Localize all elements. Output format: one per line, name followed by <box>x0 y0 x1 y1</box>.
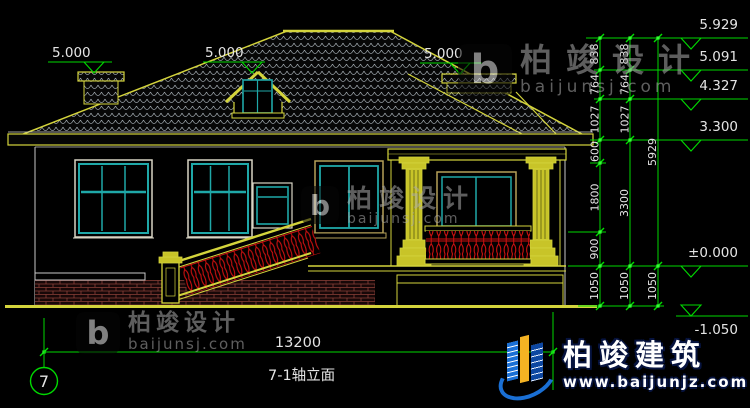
company-brand: 柏竣建筑 www.baijunjz.com <box>497 334 748 396</box>
dim-inner-2: 764 <box>589 74 602 95</box>
overall-width-dimension: 13200 <box>275 335 321 351</box>
window-sliding <box>312 161 386 238</box>
dim-mid-2: 764 <box>619 74 632 95</box>
dim-mid-3: 1027 <box>619 106 632 134</box>
plinth-cap-band <box>35 273 145 280</box>
axis-number: 7 <box>39 372 49 391</box>
level-eave: 4.327 <box>699 78 738 94</box>
level-dormer: 5.000 <box>205 45 244 61</box>
dim-outer-1: 5929 <box>646 138 659 166</box>
dim-inner-7: 1050 <box>588 272 601 300</box>
level-left-chimney: 5.000 <box>52 45 91 61</box>
window-mid-large <box>186 160 254 238</box>
company-name: 柏竣建筑 <box>563 339 748 372</box>
window-left-large <box>73 160 154 238</box>
dim-inner-4: 600 <box>589 141 602 162</box>
view-title: 7-1轴立面 <box>268 367 335 384</box>
porch-column-left <box>397 157 431 266</box>
window-small <box>253 183 292 228</box>
level-wall-top: 3.300 <box>699 119 738 135</box>
dormer-sill <box>232 113 284 118</box>
level-right-chimney: 5.000 <box>424 46 463 62</box>
porch-railing <box>425 226 531 264</box>
dim-mid-5: 1050 <box>618 272 631 300</box>
dim-inner-6: 900 <box>588 239 601 260</box>
porch-glass-door <box>437 172 516 230</box>
company-site: www.baijunjz.com <box>563 373 748 391</box>
dim-inner-3: 1027 <box>589 106 602 134</box>
dim-inner-5: 1800 <box>589 184 602 212</box>
right-chimney <box>442 74 516 93</box>
cad-elevation-sheet: 5.929 5.091 4.327 3.300 ±0.000 -1.050 5.… <box>0 0 750 408</box>
dim-outer-2: 1050 <box>646 272 659 300</box>
dim-mid-4: 3300 <box>618 189 631 217</box>
level-upper: 5.091 <box>699 49 738 65</box>
eave-fascia <box>8 132 593 145</box>
dim-inner-1: 838 <box>588 44 601 65</box>
chain-dimension-text: 838 764 1027 600 1800 900 1050 838 764 1… <box>588 44 659 301</box>
level-floor: ±0.000 <box>688 245 738 261</box>
dim-mid-1: 838 <box>618 44 631 65</box>
left-chimney <box>78 72 124 104</box>
elevation-marker-triangles <box>681 38 701 316</box>
level-ridge: 5.929 <box>699 17 738 33</box>
company-logo-icon <box>497 334 555 396</box>
